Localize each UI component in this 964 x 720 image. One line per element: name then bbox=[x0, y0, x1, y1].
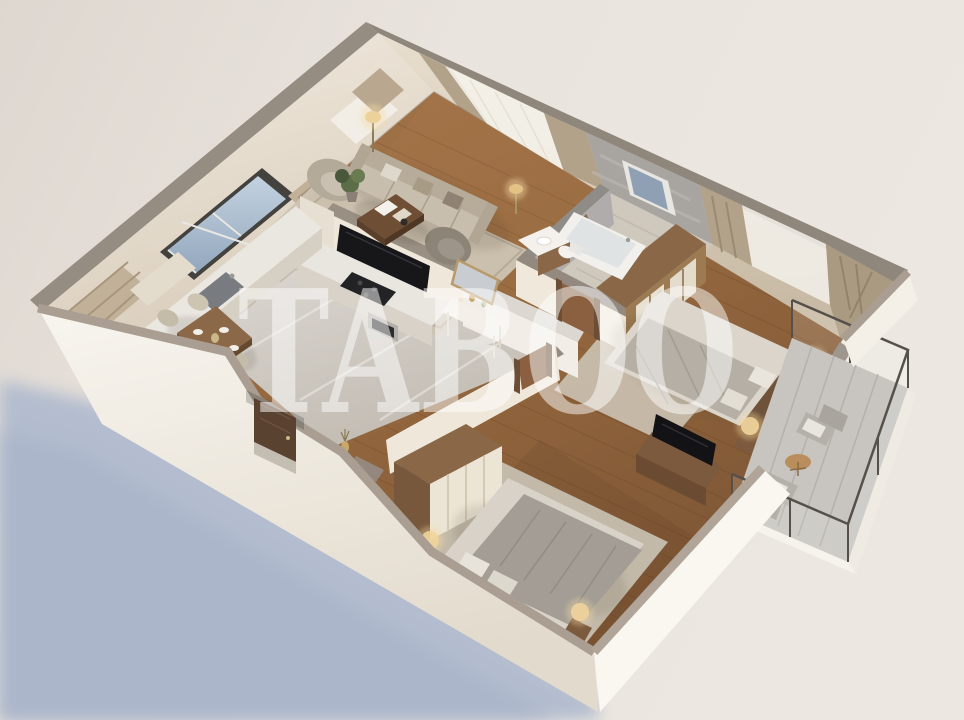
plant-pot bbox=[346, 192, 358, 202]
plant-foliage bbox=[351, 169, 365, 183]
floor-plan-screenshot: TABOO bbox=[0, 0, 964, 720]
plate bbox=[219, 327, 229, 333]
vanity-sink bbox=[537, 237, 551, 245]
faucet bbox=[230, 274, 235, 279]
lamp-glow bbox=[566, 598, 594, 626]
plant-foliage bbox=[335, 169, 349, 183]
floor-lamp-shade bbox=[365, 111, 381, 123]
plate bbox=[193, 329, 203, 335]
table-bowl bbox=[401, 219, 408, 226]
apartment-render: TABOO bbox=[0, 0, 964, 720]
centerpiece bbox=[211, 333, 219, 343]
watermark-text: TABOO bbox=[238, 253, 738, 453]
gold-lamp-shade bbox=[509, 184, 523, 194]
tub-faucet bbox=[626, 238, 630, 242]
